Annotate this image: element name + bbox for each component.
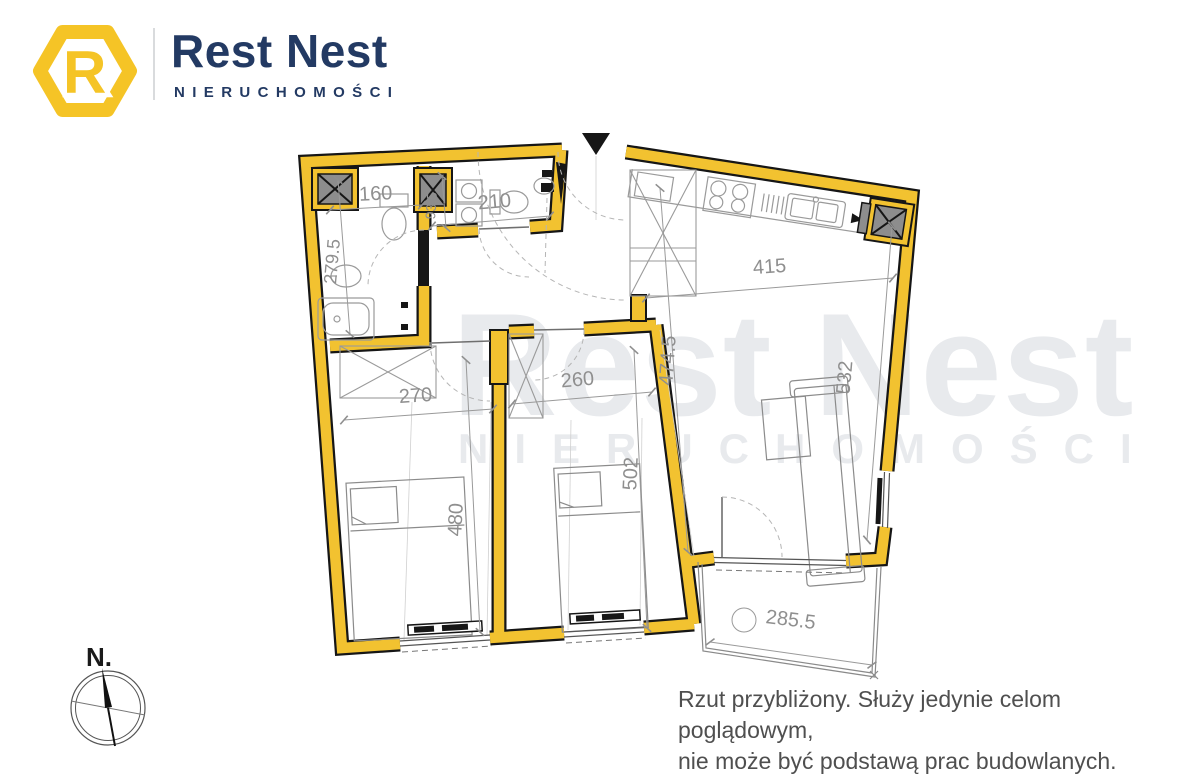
radiator	[570, 610, 640, 624]
dim-474-5: 474.5	[655, 335, 680, 386]
balcony-door-swing	[722, 497, 782, 557]
disclaimer-line2: nie może być podstawą prac budowlanych.	[678, 746, 1178, 777]
window-bedroom2	[564, 610, 646, 643]
brand-logo-hexagon-icon: R	[26, 12, 146, 132]
bathtub	[318, 298, 374, 340]
window-living-side	[878, 472, 890, 528]
header: R Rest Nest NIERUCHOMOŚCI	[0, 0, 700, 130]
wall-pillar	[490, 330, 508, 384]
drainer	[761, 194, 784, 215]
stove-icon	[703, 177, 756, 218]
brand-name: Rest Nest	[171, 24, 388, 78]
shaft-bathroom	[312, 168, 358, 210]
disclaimer: Rzut przybliżony. Służy jedynie celom po…	[678, 684, 1178, 777]
toilet-icon	[382, 208, 406, 240]
floor-plan: 160 93.5 210 279.5 270 480 260 502 415 4…	[290, 128, 950, 698]
coffee-table	[761, 396, 810, 460]
brand-divider	[153, 28, 155, 100]
entrance-door-swing	[558, 152, 626, 220]
dim-93-5: 93.5	[422, 191, 440, 220]
shaft-kitchen	[856, 197, 914, 246]
bedroom1-door-leaf	[432, 341, 490, 343]
radiator	[408, 621, 482, 635]
wc-door-leaf	[479, 227, 529, 229]
bedroom2-door-leaf	[534, 329, 584, 330]
dim-160: 160	[358, 182, 392, 206]
wall-stub	[631, 295, 646, 321]
compass-needle-icon	[102, 668, 112, 708]
dim-502: 502	[619, 456, 643, 490]
dim-210: 210	[477, 190, 512, 215]
bedroom1-door-swing	[430, 342, 490, 401]
logo-letter: R	[63, 39, 106, 106]
dim-532: 532	[833, 360, 858, 395]
entrance-arrow-icon	[582, 133, 610, 155]
living-room	[722, 376, 865, 586]
electrical-symbol	[542, 170, 552, 177]
dim-415: 415	[752, 255, 787, 279]
balcony-window	[714, 558, 846, 574]
bathroom-door-leaf	[418, 230, 429, 286]
north-label: N.	[86, 642, 112, 672]
bathroom-door-swing	[368, 230, 424, 286]
dim-260: 260	[560, 368, 595, 393]
dim-279-5: 279.5	[320, 238, 344, 285]
dim-480: 480	[444, 502, 468, 536]
dim-270: 270	[398, 384, 433, 408]
dim-285-5: 285.5	[765, 606, 817, 634]
brand-subtitle: NIERUCHOMOŚCI	[174, 84, 399, 101]
compass: N.	[56, 642, 176, 762]
page: { "header": { "brand_name": "Rest Nest",…	[0, 0, 1200, 770]
disclaimer-line1: Rzut przybliżony. Służy jedynie celom po…	[678, 684, 1178, 746]
wc-door-swing	[479, 229, 529, 277]
